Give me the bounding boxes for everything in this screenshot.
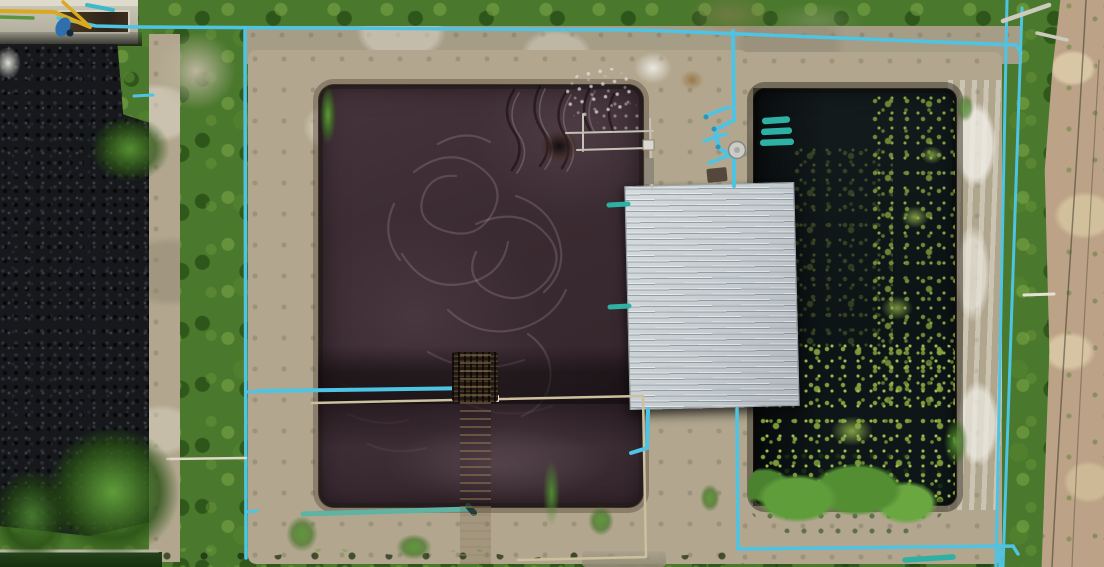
grass-tuft — [396, 534, 432, 560]
aerial-photo-canvas — [0, 0, 1104, 567]
pipe-teal-lower — [303, 509, 471, 514]
plank — [1037, 33, 1067, 40]
pipe-bottom-run — [738, 546, 1018, 567]
equipment-dark-part — [67, 30, 74, 37]
grass-tuft — [956, 94, 974, 122]
pipe-roof-to-bottom — [737, 409, 738, 549]
outfall-bar — [760, 138, 794, 146]
pump-tank-cap — [734, 147, 740, 153]
plank — [1003, 5, 1049, 21]
wire — [1072, 60, 1099, 567]
pipe-top-run — [58, 18, 1016, 45]
valve-handle — [716, 145, 721, 150]
wire — [1052, 0, 1086, 567]
roof-side-stubs — [609, 204, 629, 307]
pole-column — [645, 158, 654, 184]
grass-tuft — [286, 516, 318, 552]
roof-corner-pipe — [631, 409, 648, 453]
green-hose — [0, 17, 33, 18]
pipe-mid-crossing — [259, 388, 478, 391]
pole-junction-box — [643, 140, 654, 150]
pipe-bottom-teal — [905, 557, 953, 560]
white-stub-pipe — [1024, 294, 1054, 295]
equipment-box — [706, 167, 727, 183]
grass-tuft — [588, 506, 614, 536]
grass-tuft — [700, 484, 720, 512]
access-ladder — [460, 354, 491, 564]
valve-handle — [712, 127, 717, 132]
grass-tuft — [944, 418, 968, 466]
valve-handle — [704, 115, 709, 120]
pipe-white-branch — [167, 458, 246, 459]
pipe-left-vertical — [245, 30, 246, 558]
teal-fitting — [87, 5, 113, 10]
outfall-bar — [762, 116, 790, 124]
outfall-bar — [761, 127, 792, 135]
metal-poles — [566, 114, 653, 190]
